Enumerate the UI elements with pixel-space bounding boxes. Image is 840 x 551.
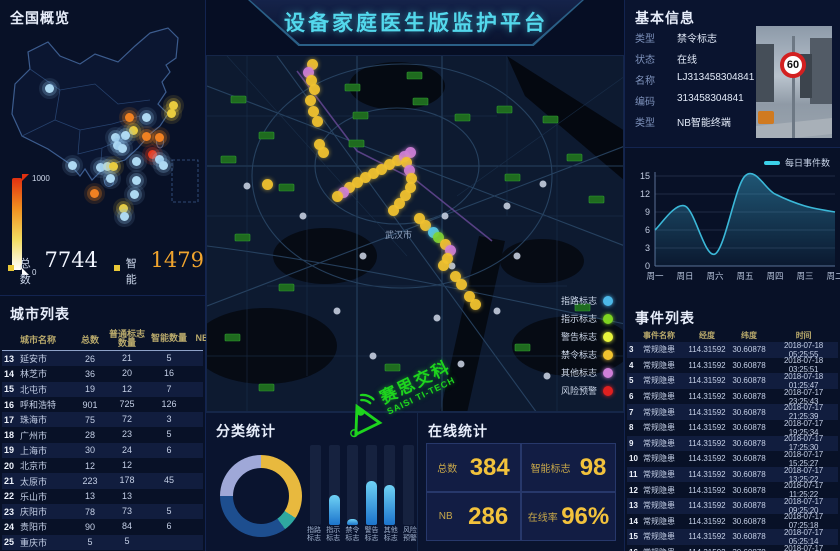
panel-event-list: 事件列表 事件名称经度纬度时间3常规隐患114.3159230.60878201… [624,302,840,551]
y-tick: 12 [640,189,650,199]
chart-legend: 每日事件数 [764,156,830,169]
sign-dot-icon [456,279,467,290]
col-header: 纬度 [729,330,769,341]
sign-dot-icon [388,205,399,216]
map-bubble-icon [109,162,118,171]
event-time: 2018-07-17 03:25:10 [769,544,838,551]
city-normal: 23 [106,430,148,439]
legend-dot-icon [603,296,613,306]
event-lng: 114.31592 [685,345,729,354]
city-normal: 12 [106,461,148,470]
panel-category-stats: 分类统计 指路标志指示标志禁令标志警告标志其他标志风险预警 [206,412,418,551]
event-row[interactable]: 8常规隐患114.3159230.608782018-07-17 19:25:3… [627,420,838,436]
map-bubble-icon [132,176,141,185]
total-value: 7744 [45,248,98,272]
field-label: 状态 [635,51,677,66]
sign-dot-icon [318,147,329,158]
total-label: 总数 [20,255,41,287]
x-tick: 周六 [706,271,724,281]
city-row[interactable]: 20北京市12120 [2,458,203,473]
scale-max-label: 1000 [32,174,50,183]
field-value: 禁令标志 [677,30,717,45]
map-bubble-icon [142,113,151,122]
row-index: 5 [627,376,643,385]
row-index: 17 [2,415,20,425]
city-table-header: 城市名称总数普通标志数量智能数量NB数量 [2,328,203,351]
row-index: 9 [627,439,643,448]
event-name: 常规隐患 [643,344,685,355]
panel-daily-events-chart: 每日事件数 03691215周一周日周六周五周四周三周二 [624,148,840,302]
city-smart: 45 [148,476,190,485]
event-row[interactable]: 15常规隐患114.3159230.608782018-07-17 05:25:… [627,529,838,545]
stat-label: 总数 [437,460,457,475]
event-lng: 114.31592 [685,454,729,463]
event-row[interactable]: 10常规隐患114.3159230.608782018-07-17 15:25:… [627,451,838,467]
city-total: 12 [74,461,106,471]
online-stat-card: 总数384 [427,444,520,491]
city-name: 呼和浩特 [20,398,74,411]
city-name: 珠海市 [20,413,74,426]
sign-dot-icon [332,191,343,202]
event-lng: 114.31592 [685,517,729,526]
event-row[interactable]: 16常规隐患114.3159230.608782018-07-17 03:25:… [627,545,838,551]
row-index: 15 [2,384,20,394]
row-index: 21 [2,476,20,486]
row-index: 25 [2,537,20,547]
bar-track [384,445,395,525]
city-row[interactable]: 19上海市302460 [2,443,203,458]
city-name: 北屯市 [20,383,74,396]
bar-category-label: 指路标志 [306,527,322,542]
bar-chart[interactable] [310,445,414,525]
event-lng: 114.31592 [685,486,729,495]
event-lng: 114.31592 [685,470,729,479]
city-row[interactable]: 18广州市282350 [2,427,203,442]
event-name: 常规隐患 [643,516,685,527]
city-name: 重庆市 [20,536,74,549]
stat-label: 智能标志 [531,460,571,475]
row-index: 13 [2,354,20,364]
city-name: 上海市 [20,444,74,457]
city-normal: 12 [106,385,148,394]
row-index: 11 [627,470,643,479]
row-index: 16 [2,400,20,410]
city-map[interactable]: 武汉市 指路标志指示标志警告标志禁令标志其他标志风险预警 [206,55,624,412]
city-name: 延安市 [20,352,74,365]
event-row[interactable]: 9常规隐患114.3159230.608782018-07-17 17:25:3… [627,436,838,452]
center-column: 设备家庭医生版监护平台 [206,0,624,551]
row-index: 12 [627,486,643,495]
event-lng: 114.31592 [685,532,729,541]
field-value: 313458304841 [677,93,744,108]
row-index: 19 [2,445,20,455]
map-bubble-icon [90,189,99,198]
line-chart[interactable]: 03691215周一周日周六周五周四周三周二 [625,170,840,300]
city-total: 19 [74,384,106,394]
city-name: 北京市 [20,459,74,472]
area-fill [655,174,835,266]
event-row[interactable]: 4常规隐患114.3159230.608782018-07-18 03:25:5… [627,358,838,374]
event-lat: 30.60878 [729,392,769,401]
map-bubble-icon [45,84,54,93]
city-total: 36 [74,369,106,379]
sign-dot-icon [305,95,316,106]
event-lat: 30.60878 [729,361,769,370]
south-china-sea-inset [172,160,198,202]
city-smart: 6 [148,446,190,455]
x-tick: 周二 [826,271,840,281]
city-smart: 6 [148,522,190,531]
city-name: 贵阳市 [20,520,74,533]
event-lat: 30.60878 [729,423,769,432]
basic-info-title: 基本信息 [635,8,695,28]
bar-track [403,445,414,525]
map-bubble-icon [167,109,176,118]
field-value: 在线 [677,51,697,66]
field-value: NB智能终端 [677,114,731,129]
online-stats-title: 在线统计 [428,421,488,441]
col-header: 事件名称 [643,330,685,341]
bar-track [347,445,358,525]
map-bubble-icon [142,132,151,141]
city-smart: 5 [148,507,190,516]
row-index: 24 [2,522,20,532]
map-bubble-icon [118,144,127,153]
city-total: 78 [74,507,106,517]
sign-dot-icon [312,116,323,127]
event-row[interactable]: 5常规隐患114.3159230.608782018-07-18 01:25:4… [627,373,838,389]
city-normal: 5 [106,537,148,546]
smart-value: 1479 [151,248,204,272]
city-row[interactable]: 13延安市262150 [2,351,203,366]
overview-stats: 总数 7744 智能 1479 [8,248,204,287]
map-bubble-icon [132,157,141,166]
online-stat-card: 智能标志98 [522,444,615,491]
sign-dot-icon [262,179,273,190]
city-table: 城市名称总数普通标志数量智能数量NB数量13延安市26215014林芝市3620… [2,328,203,550]
map-bubble-icon [68,161,77,170]
event-lat: 30.60878 [729,408,769,417]
legend-label: 警告标志 [561,330,597,343]
row-index: 15 [627,532,643,541]
map-legend-item: 指路标志 [561,294,613,307]
city-normal: 72 [106,415,148,424]
smart-stat: 智能 1479 [114,248,204,287]
bar-track [366,445,377,525]
city-row[interactable]: 16呼和浩特90172512650 [2,397,203,412]
sign-dot-icon [309,84,320,95]
event-row[interactable]: 11常规隐患114.3159230.608782018-07-17 13:25:… [627,467,838,483]
map-bubble-icon [155,133,164,142]
event-row[interactable]: 6常规隐患114.3159230.608782018-07-17 23:25:4… [627,389,838,405]
col-header: 城市名称 [20,333,74,346]
photo-truck [758,111,774,124]
city-row[interactable]: 15北屯市191270 [2,382,203,397]
event-row[interactable]: 13常规隐患114.3159230.608782018-07-17 09:25:… [627,498,838,514]
info-field: 名称LJ313458304841 [635,72,753,87]
device-photo[interactable]: 60 [756,26,832,138]
legend-label: 禁令标志 [561,348,597,361]
field-label: 类型 [635,30,677,45]
event-name: 常规隐患 [643,547,685,551]
city-row[interactable]: 14林芝市3620160 [2,366,203,381]
map-legend-item: 其他标志 [561,366,613,379]
map-legend-item: 指示标志 [561,312,613,325]
map-bubble-icon [125,113,134,122]
event-lat: 30.60878 [729,470,769,479]
event-lng: 114.31592 [685,423,729,432]
event-name: 常规隐患 [643,391,685,402]
city-total: 223 [74,476,106,486]
event-row[interactable]: 3常规隐患114.3159230.608782018-07-18 05:25:5… [627,342,838,358]
col-header: 智能数量 [148,334,190,343]
legend-line-icon [764,161,780,165]
row-index: 14 [2,369,20,379]
city-normal: 725 [106,400,148,409]
legend-dot-icon [603,350,613,360]
online-stat-card: 在线率96% [522,493,615,540]
row-index: 14 [627,517,643,526]
city-total: 30 [74,445,106,455]
speed-limit-sign: 60 [780,52,806,78]
bar-value [366,481,377,525]
y-tick: 15 [640,171,650,181]
donut-chart[interactable] [220,455,302,537]
city-total: 26 [74,354,106,364]
event-lng: 114.31592 [685,361,729,370]
city-total: 28 [74,430,106,440]
city-total: 5 [74,537,106,547]
map-bubble-icon [120,212,129,221]
event-name: 常规隐患 [643,407,685,418]
info-field: 类型NB智能终端 [635,114,753,129]
category-stats-title: 分类统计 [216,421,276,441]
col-header: 经度 [685,330,729,341]
stat-label: 在线率 [528,509,558,524]
city-smart: 126 [148,400,190,409]
basic-info-fields: 类型禁令标志状态在线名称LJ313458304841编码313458304841… [635,30,753,135]
sign-dot-icon [470,299,481,310]
online-stat-card: NB286 [427,493,520,540]
city-name: 广州市 [20,429,74,442]
stat-label: NB [439,511,453,522]
legend-label: 每日事件数 [785,156,830,169]
event-lat: 30.60878 [729,532,769,541]
bar-category-label: 禁令标志 [344,527,360,542]
photo-building [810,38,832,104]
map-legend-item: 禁令标志 [561,348,613,361]
bar-chart-labels: 指路标志指示标志禁令标志警告标志其他标志风险预警 [306,527,418,542]
x-tick: 周一 [646,271,664,281]
legend-label: 指示标志 [561,312,597,325]
city-list-title: 城市列表 [10,304,70,324]
event-name: 常规隐患 [643,438,685,449]
row-index: 18 [2,430,20,440]
panel-online-stats: 在线统计 总数384智能标志98NB286在线率96% [418,412,624,551]
col-header: 总数 [74,333,106,346]
row-index: 7 [627,408,643,417]
map-bubble-icon [106,174,115,183]
event-name: 常规隐患 [643,485,685,496]
city-normal: 21 [106,354,148,363]
panel-basic-info: 基本信息 类型禁令标志状态在线名称LJ313458304841编码3134583… [624,0,840,148]
city-row[interactable]: 24贵阳市908460 [2,519,203,534]
city-normal: 73 [106,507,148,516]
row-index: 13 [627,501,643,510]
bullet-icon [8,265,14,271]
event-lat: 30.60878 [729,345,769,354]
y-tick: 3 [645,243,650,253]
city-smart: 5 [148,430,190,439]
bar-category-label: 指示标志 [325,527,341,542]
row-index: 3 [627,345,643,354]
bar-category-label: 警告标志 [364,527,380,542]
city-row[interactable]: 21太原市223178450 [2,473,203,488]
bar-track [310,445,321,525]
event-name: 常规隐患 [643,375,685,386]
city-name: 林芝市 [20,367,74,380]
city-row[interactable]: 22乐山市13130 [2,489,203,504]
event-name: 常规隐患 [643,360,685,371]
row-index: 23 [2,507,20,517]
col-header: 普通标志数量 [106,330,148,349]
city-smart: 7 [148,385,190,394]
event-name: 常规隐患 [643,469,685,480]
row-index: 6 [627,392,643,401]
field-label: 类型 [635,114,677,129]
city-row[interactable]: 23庆阳市787350 [2,504,203,519]
x-tick: 周三 [796,271,813,281]
info-field: 状态在线 [635,51,753,66]
bullet-icon [114,265,120,271]
x-tick: 周五 [736,271,754,281]
page-title: 设备家庭医生版监护平台 [284,7,548,37]
map-bubble-icon [130,190,139,199]
stat-value: 384 [470,454,510,482]
event-list-title: 事件列表 [635,308,695,328]
bar-track [329,445,340,525]
city-total: 75 [74,415,106,425]
city-name: 太原市 [20,475,74,488]
legend-dot-icon [603,314,613,324]
event-name: 常规隐患 [643,531,685,542]
x-tick: 周日 [676,271,693,281]
city-row[interactable]: 17珠海市757230 [2,412,203,427]
banner: 设备家庭医生版监护平台 [250,0,582,44]
event-lat: 30.60878 [729,439,769,448]
y-tick: 6 [645,225,650,235]
event-name: 常规隐患 [643,453,685,464]
info-field: 类型禁令标志 [635,30,753,45]
legend-dot-icon [603,386,613,396]
city-total: 13 [74,491,106,501]
china-map[interactable] [0,20,206,250]
map-bubble-icon [129,126,138,135]
total-stat: 总数 7744 [8,248,98,287]
row-index: 10 [627,454,643,463]
y-tick: 0 [645,261,650,271]
event-lng: 114.31592 [685,439,729,448]
sign-dot-icon [438,260,449,271]
city-name: 乐山市 [20,490,74,503]
panel-city-list: 城市列表 城市名称总数普通标志数量智能数量NB数量13延安市26215014林芝… [0,296,206,551]
event-lng: 114.31592 [685,408,729,417]
city-row[interactable]: 25重庆市550 [2,535,203,550]
city-normal: 24 [106,446,148,455]
event-table: 事件名称经度纬度时间3常规隐患114.3159230.608782018-07-… [627,328,838,551]
smart-label: 智能 [126,255,147,287]
map-bubble-icon [159,161,168,170]
scale-max-arrow-icon [22,174,29,181]
row-index: 22 [2,491,20,501]
info-field: 编码313458304841 [635,93,753,108]
event-lat: 30.60878 [729,517,769,526]
map-legend-item: 警告标志 [561,330,613,343]
map-legend-item: 风险预警 [561,384,613,397]
photo-building [756,44,774,102]
event-name: 常规隐患 [643,422,685,433]
legend-label: 风险预警 [561,384,597,397]
dashboard-root: 全国概览 1000 0 总数 7744 智能 1479 [0,0,840,551]
legend-label: 指路标志 [561,294,597,307]
row-index: 20 [2,461,20,471]
city-total: 901 [74,400,106,410]
city-smart: 16 [148,369,190,378]
map-bubble-icon [121,131,130,140]
field-label: 编码 [635,93,677,108]
stat-value: 96% [561,503,609,531]
legend-label: 其他标志 [561,366,597,379]
row-index: 4 [627,361,643,370]
col-header: 时间 [769,330,838,341]
city-total: 90 [74,522,106,532]
stat-value: 286 [468,503,508,531]
map-legend: 指路标志指示标志警告标志禁令标志其他标志风险预警 [561,294,613,397]
field-value: LJ313458304841 [677,72,754,87]
city-normal: 178 [106,476,148,485]
city-name-label: 武汉市 [385,228,412,241]
bar-category-label: 风险预警 [402,527,418,542]
legend-dot-icon [603,332,613,342]
event-row[interactable]: 12常规隐患114.3159230.608782018-07-17 11:25:… [627,482,838,498]
field-label: 名称 [635,72,677,87]
bar-value [384,485,395,525]
online-stat-cards: 总数384智能标志98NB286在线率96% [426,443,616,541]
legend-dot-icon [603,368,613,378]
event-row[interactable]: 7常规隐患114.3159230.608782018-07-17 21:25:3… [627,404,838,420]
city-normal: 20 [106,369,148,378]
bar-value [347,519,358,525]
x-tick: 周四 [766,271,783,281]
city-name: 庆阳市 [20,505,74,518]
city-smart: 3 [148,415,190,424]
event-lat: 30.60878 [729,454,769,463]
panel-national-overview: 全国概览 1000 0 总数 7744 智能 1479 [0,0,206,296]
event-name: 常规隐患 [643,500,685,511]
bar-value [329,495,340,525]
bar-category-label: 其他标志 [383,527,399,542]
event-lng: 114.31592 [685,392,729,401]
city-normal: 13 [106,492,148,501]
city-smart: 5 [148,354,190,363]
stat-value: 98 [580,454,607,482]
event-row[interactable]: 14常规隐患114.3159230.608782018-07-17 07:25:… [627,514,838,530]
event-lat: 30.60878 [729,376,769,385]
event-lat: 30.60878 [729,501,769,510]
event-lng: 114.31592 [685,501,729,510]
row-index: 8 [627,423,643,432]
event-lng: 114.31592 [685,376,729,385]
